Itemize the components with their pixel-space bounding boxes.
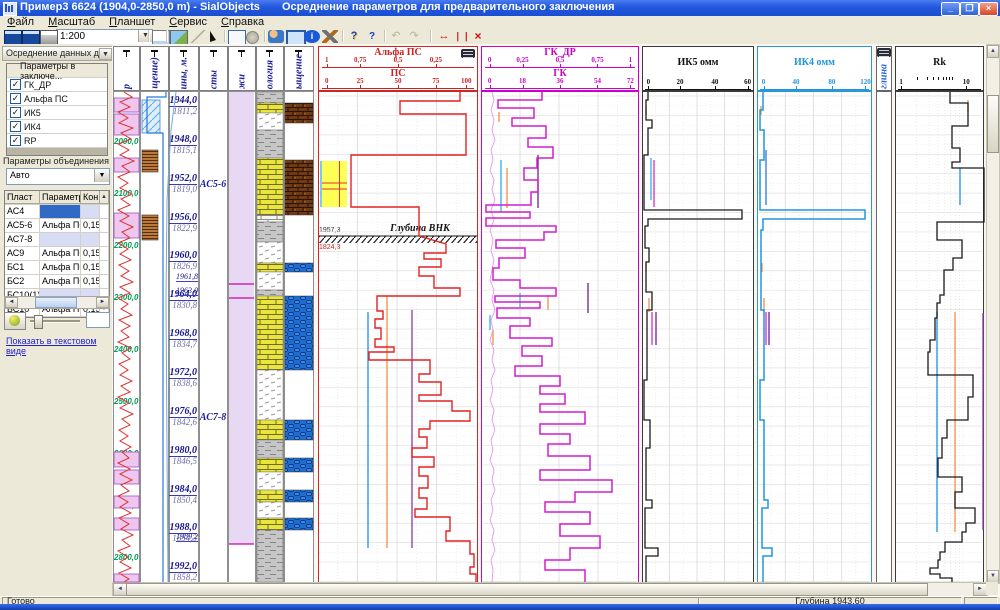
cell-kon[interactable]	[81, 233, 100, 246]
scroll-track[interactable]	[100, 275, 109, 288]
tick-label: 40	[711, 78, 718, 86]
merge-mode-value: Авто	[10, 170, 30, 180]
tick-mark	[436, 85, 437, 89]
column-header-reper[interactable]: р	[113, 46, 140, 91]
tick-label: 1	[325, 56, 329, 64]
scroll-left-icon[interactable]: ◄	[5, 297, 18, 308]
scroll-right-icon[interactable]: ►	[96, 297, 109, 308]
image-icon[interactable]	[170, 30, 188, 45]
overview-depth: 2000,0	[114, 137, 138, 146]
column-header-depth[interactable]: ины, м.	[169, 46, 199, 91]
tick-label: 0,75	[591, 56, 603, 64]
table-row[interactable]: АС7-8	[5, 233, 109, 247]
list-filler	[7, 148, 107, 155]
tick-label: 72	[627, 77, 634, 85]
track-body-nar[interactable]	[876, 91, 892, 584]
menu-bar: ФайлМасштабПланшетСервисСправка	[0, 16, 1000, 29]
log-tick	[949, 77, 950, 80]
plast-label: АС5-6	[199, 179, 227, 190]
slider-thumb[interactable]	[34, 315, 43, 329]
track-body-ik4[interactable]	[757, 91, 872, 584]
tick-label: 1	[629, 56, 633, 64]
toolbar-separator	[342, 30, 344, 42]
column-header-2[interactable]: Параметр...	[40, 191, 81, 204]
undo-icon[interactable]: ↶	[388, 30, 404, 43]
scroll-track[interactable]	[100, 205, 109, 218]
curve-title: Rk	[896, 57, 983, 68]
pane-title[interactable]: Осреднение данных для предвар...▼	[2, 46, 114, 61]
column-body-saturation2[interactable]	[140, 91, 169, 584]
tick-mark	[360, 85, 361, 89]
header-row: Альфа ПС10,750,50,25	[319, 47, 477, 68]
scroll-track[interactable]	[100, 233, 109, 246]
tick-label: 10	[963, 78, 970, 86]
track-header-nar[interactable]: глина	[876, 46, 892, 91]
track-header-rk[interactable]: Rk110	[895, 46, 984, 91]
tick-label: 60	[744, 78, 751, 86]
depth-abs: 1842,6	[169, 417, 197, 427]
left-panel: Осреднение данных для предвар...▼ Параме…	[0, 44, 113, 596]
depth-abs: 1826,9	[169, 261, 197, 271]
tick-mark	[901, 86, 902, 90]
boundary-depth: 1989,2	[176, 532, 198, 542]
tools-icon[interactable]	[322, 30, 338, 43]
zalezh-fill	[229, 92, 254, 544]
zoom-scale-value: 1:200	[60, 31, 85, 42]
param-label: ИК4	[24, 122, 41, 132]
globe-icon	[9, 315, 20, 326]
depth-abs: 1830,8	[169, 300, 197, 310]
track-body-gk[interactable]	[481, 91, 639, 584]
save-all-icon[interactable]	[22, 30, 40, 45]
track-header-gk[interactable]: ГК_ДР00,250,50,751ГК018365472	[481, 46, 639, 91]
toolbar-separator	[166, 30, 168, 42]
application-window: Пример3 6624 (1904,0-2850,0 m) - SialObj…	[0, 0, 1000, 610]
toolbar-separator	[224, 30, 226, 42]
column-header-saturation2[interactable]: щение)	[140, 46, 169, 91]
column-body-plast[interactable]	[199, 91, 228, 584]
param-label: Альфа ПС	[24, 94, 68, 104]
save-icon[interactable]	[4, 30, 22, 45]
cell-plast[interactable]: БС1	[5, 261, 40, 274]
help-icon[interactable]: ?	[346, 30, 362, 43]
menu-item-3[interactable]: Планшет	[102, 16, 162, 29]
help-cursor-icon[interactable]: ?	[364, 30, 380, 43]
column-header-saturation[interactable]: ыщение	[284, 46, 314, 91]
cursor-plus-icon[interactable]	[210, 31, 216, 42]
axis-line	[760, 89, 868, 90]
tick-label: 100	[461, 77, 472, 85]
overview-depth: 2600,0	[114, 449, 138, 458]
checkbox-icon[interactable]: ✓	[10, 79, 21, 90]
toolbar-separator	[430, 30, 432, 42]
table-row[interactable]: АС9Альфа ПС0,15	[5, 247, 109, 261]
tick-label: 0,25	[430, 56, 442, 64]
param-row-ИК5[interactable]: ✓ИК5	[7, 106, 107, 120]
checkbox-icon[interactable]: ✓	[10, 107, 21, 118]
column-header-1[interactable]: Пласт	[5, 191, 40, 204]
cell-kon[interactable]: 0,15	[81, 219, 100, 232]
tick-label: 0,75	[354, 56, 366, 64]
column-header-label: ины, м.	[179, 57, 190, 89]
sync-icon[interactable]: ↔	[436, 30, 452, 43]
legend-icon[interactable]	[877, 48, 891, 57]
scrollbar-thumb[interactable]	[35, 297, 77, 308]
param-row-Альфа ПС[interactable]: ✓Альфа ПС	[7, 92, 107, 106]
tick-mark	[523, 85, 524, 89]
tick-label: 50	[395, 77, 402, 85]
plast-table-hscrollbar[interactable]: ◄ ►	[4, 296, 110, 309]
tick-mark	[398, 85, 399, 89]
tick-label: 0	[488, 77, 492, 85]
param-label: RP	[24, 136, 37, 146]
menu-item-1[interactable]: Файл	[0, 16, 41, 29]
depth-abs: 1811,2	[169, 106, 197, 116]
pin-icon[interactable]	[295, 50, 302, 52]
overview-depth: 2200,0	[114, 241, 138, 250]
tick-label: 18	[519, 77, 526, 85]
cell-param[interactable]: Альфа ПС	[40, 219, 81, 232]
legend-icon[interactable]	[461, 49, 475, 58]
overview-depth: 2300,0	[114, 293, 138, 302]
value-box[interactable]	[86, 312, 110, 328]
header-row: ИК4 омм04080120	[758, 57, 871, 90]
table-row[interactable]: БС1Альфа ПС0,15	[5, 261, 109, 275]
header-row: ГК018365472	[482, 68, 638, 89]
redo-icon[interactable]: ↷	[406, 30, 422, 43]
cell-kon[interactable]	[81, 205, 100, 218]
scroll-up-icon[interactable]: ▲	[987, 45, 999, 58]
pin-icon[interactable]	[151, 50, 158, 52]
log-tick	[933, 77, 934, 80]
axis-line	[898, 89, 982, 90]
plast-table-header: ПластПараметр...Кон▲	[5, 191, 109, 205]
print-icon[interactable]	[40, 30, 58, 45]
app-icon	[3, 2, 17, 16]
opacity-slider[interactable]	[30, 320, 80, 323]
log-tick	[943, 77, 944, 80]
overview-depth: 2700,0	[114, 501, 138, 510]
cell-kon[interactable]: 0,15	[81, 261, 100, 274]
curve-title: ИК4 омм	[758, 57, 871, 68]
toolbar-separator	[148, 30, 150, 42]
chevron-down-icon[interactable]: ▼	[94, 169, 109, 182]
track-body-ik5[interactable]	[642, 91, 754, 584]
tick-label: 120	[860, 78, 871, 86]
header-row: ИК5 омм0204060	[643, 57, 753, 90]
plast-label: АС7-8	[199, 412, 227, 423]
column-header-label: р	[121, 84, 132, 89]
header-row: ГК_ДР00,250,50,751	[482, 47, 638, 68]
column-header-label: ыщение	[294, 54, 305, 89]
param-row-RP[interactable]: ✓RP	[7, 134, 107, 148]
apply-button[interactable]	[4, 312, 26, 330]
tick-mark	[832, 86, 833, 90]
overview-depth: 2400,0	[114, 345, 138, 354]
cell-param[interactable]: Альфа ПС	[40, 261, 81, 274]
log-plot-area[interactable]: рщение)ины, м.стыжиологияыщениеАльфа ПС1…	[112, 44, 1000, 596]
track-header-alfa[interactable]: Альфа ПС10,750,50,25ПС0255075100	[318, 46, 478, 91]
window-title: Пример3 6624 (1904,0-2850,0 m) - SialObj…	[20, 1, 260, 13]
cell-param[interactable]	[40, 233, 81, 246]
table-row[interactable]: АС5-6Альфа ПС0,15	[5, 219, 109, 233]
info-icon[interactable]: i	[304, 30, 320, 43]
column-header-label: щение)	[149, 57, 160, 89]
cell-plast[interactable]: АС5-6	[5, 219, 40, 232]
depth-abs: 1858,2	[169, 572, 197, 582]
merge-mode-combo[interactable]: Авто▼	[6, 168, 110, 185]
title-bar[interactable]: Пример3 6624 (1904,0-2850,0 m) - SialObj…	[0, 0, 1000, 16]
log-tick	[927, 77, 928, 80]
scroll-track[interactable]	[100, 219, 109, 232]
scroll-up-icon[interactable]: ▲	[100, 191, 109, 204]
toolbar-separator	[264, 30, 266, 42]
narrow-track-label: глина	[879, 64, 890, 89]
curve-title: ИК5 омм	[643, 57, 753, 68]
pane-title-label: Осреднение данных для предвар...	[6, 48, 114, 58]
scroll-left-icon[interactable]: ◄	[113, 583, 127, 596]
tick-label: 0	[647, 78, 651, 86]
log-tick	[938, 77, 939, 80]
cell-kon[interactable]: 0,15	[81, 275, 100, 288]
scrollbar-corner	[986, 582, 998, 595]
tick-label: 0,25	[516, 56, 528, 64]
tick-label: 80	[828, 78, 835, 86]
bottom-controls	[4, 312, 108, 330]
tick-label: 25	[357, 77, 364, 85]
tick-mark	[327, 85, 328, 89]
tick-label: 0	[762, 78, 766, 86]
params-header-row: Параметры в заключе...	[7, 64, 107, 78]
column-header-lithology[interactable]: ология	[256, 46, 284, 91]
tick-mark	[764, 86, 765, 90]
scroll-right-icon[interactable]: ►	[973, 583, 987, 596]
users-icon[interactable]	[268, 30, 284, 43]
vnk-abs-depth: 1824,3	[319, 244, 340, 251]
horizontal-scrollbar[interactable]: ◄►	[112, 582, 988, 597]
tick-mark	[715, 86, 716, 90]
toolbar-separator	[384, 30, 386, 42]
window-subtitle: Осреднение параметров для предварительно…	[282, 1, 615, 13]
axis-line	[645, 89, 751, 90]
depth-abs: 1850,4	[169, 495, 197, 505]
overview-depth: 2800,0	[114, 553, 138, 562]
column-body-lithology[interactable]	[256, 91, 284, 584]
tick-mark	[966, 86, 967, 90]
show-text-link[interactable]: Показать в текстовом виде	[6, 336, 112, 356]
pin-icon[interactable]	[180, 50, 187, 52]
pin-icon[interactable]	[210, 50, 217, 52]
tick-label: 20	[677, 78, 684, 86]
param-row-ИК4[interactable]: ✓ИК4	[7, 120, 107, 134]
depth-abs: 1815,1	[169, 145, 197, 155]
track-body-rk[interactable]	[895, 91, 984, 584]
track-body-alfa[interactable]	[318, 91, 478, 584]
param-label: ИК5	[24, 108, 41, 118]
parameters-list: Параметры в заключе...✓ГК_ДР✓Альфа ПС✓ИК…	[6, 63, 108, 156]
toolbar: 1:200 ▼ i??↶↷↔❘❘×	[0, 29, 1000, 45]
tick-label: 0	[488, 56, 492, 64]
stop-icon[interactable]: ×	[470, 30, 486, 43]
zoom-scale-combo[interactable]: 1:200 ▼	[56, 29, 153, 45]
cell-plast[interactable]: АС4	[5, 205, 40, 218]
tick-mark	[648, 86, 649, 90]
restore-button[interactable]: ❐	[960, 2, 979, 16]
params-header-label: Параметры в заключе...	[20, 61, 107, 81]
pin-icon[interactable]	[238, 50, 245, 52]
column-body-reper[interactable]	[113, 91, 140, 584]
checkbox-icon[interactable]: ✓	[10, 135, 21, 146]
tick-mark	[560, 85, 561, 89]
tick-label: 0	[325, 77, 329, 85]
tick-label: 40	[793, 78, 800, 86]
column-body-saturation[interactable]	[284, 91, 314, 584]
tick-mark	[865, 86, 866, 90]
overview-depth: 2100,0	[114, 189, 138, 198]
tick-mark	[490, 85, 491, 89]
boundary-depth: 1961,8	[176, 272, 198, 282]
cell-param[interactable]: Альфа ПС	[40, 247, 81, 260]
wand-icon[interactable]	[190, 30, 206, 43]
scroll-track[interactable]	[100, 261, 109, 274]
column-header-label: жи	[237, 74, 248, 89]
scroll-track[interactable]	[100, 247, 109, 260]
tick-label: 0,5	[394, 56, 403, 64]
depth-abs: 1846,5	[169, 456, 197, 466]
menu-item-4[interactable]: Сервис	[162, 16, 214, 29]
cell-plast[interactable]: АС7-8	[5, 233, 40, 246]
param-label: ГК_ДР	[24, 80, 51, 90]
vnk-depth: 1957,3	[319, 227, 340, 234]
pin-icon[interactable]	[266, 50, 273, 52]
cell-param[interactable]: Альфа ПС	[40, 275, 81, 288]
pin-icon[interactable]	[123, 50, 130, 52]
scrollbar-thumb[interactable]	[126, 583, 928, 596]
window-bottom-border	[0, 604, 1000, 610]
tick-label: 0,5	[556, 56, 565, 64]
depth-abs: 1819,0	[169, 184, 197, 194]
merge-group-title: Параметры объединения	[0, 156, 112, 166]
tick-label: 75	[432, 77, 439, 85]
header-row: Rk110	[896, 57, 983, 90]
tick-mark	[680, 86, 681, 90]
column-header-zalezh[interactable]: жи	[228, 46, 256, 91]
menu-item-2[interactable]: Масштаб	[41, 16, 102, 29]
boundary-depth: 1963,0	[176, 286, 198, 296]
header-row: ПС0255075100	[319, 68, 477, 89]
cell-plast[interactable]: АС9	[5, 247, 40, 260]
tick-mark	[466, 85, 467, 89]
tick-mark	[748, 86, 749, 90]
table-row[interactable]: БС2Альфа ПС0,15	[5, 275, 109, 289]
column-header-label: ология	[265, 60, 276, 89]
cell-kon[interactable]: 0,15	[81, 247, 100, 260]
log-tick	[917, 77, 918, 80]
depth-abs: 1838,6	[169, 378, 197, 388]
column-header-label: сты	[208, 70, 219, 89]
depth-abs: 1822,9	[169, 223, 197, 233]
column-header-3[interactable]: Кон	[81, 191, 100, 204]
record-icon[interactable]	[246, 31, 259, 44]
menu-item-5[interactable]: Справка	[214, 16, 271, 29]
checkbox-icon[interactable]: ✓	[10, 121, 21, 132]
checkbox-icon[interactable]: ✓	[10, 93, 21, 104]
vertical-scrollbar[interactable]: ▲▼	[986, 44, 1000, 584]
scrollbar-thumb[interactable]	[987, 95, 999, 153]
close-button[interactable]: ×	[979, 2, 998, 16]
tick-mark	[796, 86, 797, 90]
log-tick	[952, 77, 953, 80]
overview-depth: 2500,0	[114, 397, 138, 406]
track-header-ik5[interactable]: ИК5 омм0204060	[642, 46, 754, 91]
vnk-label: Глубина ВНК	[370, 223, 470, 234]
grid-icon[interactable]	[228, 30, 246, 45]
tick-label: 1	[899, 78, 903, 86]
column-header-plast[interactable]: сты	[199, 46, 228, 91]
tick-label: 54	[594, 77, 601, 85]
cell-param[interactable]	[40, 205, 81, 218]
tick-mark	[630, 85, 631, 89]
tick-label: 36	[557, 77, 564, 85]
chevron-down-icon[interactable]: ▼	[99, 48, 112, 60]
track-header-ik4[interactable]: ИК4 омм04080120	[757, 46, 872, 91]
minimize-button[interactable]: _	[941, 2, 960, 16]
depth-abs: 1834,7	[169, 339, 197, 349]
cell-plast[interactable]: БС2	[5, 275, 40, 288]
log-tick	[946, 77, 947, 80]
tick-mark	[597, 85, 598, 89]
pause-icon[interactable]: ❘❘	[454, 30, 470, 43]
table-row[interactable]: АС4	[5, 205, 109, 219]
